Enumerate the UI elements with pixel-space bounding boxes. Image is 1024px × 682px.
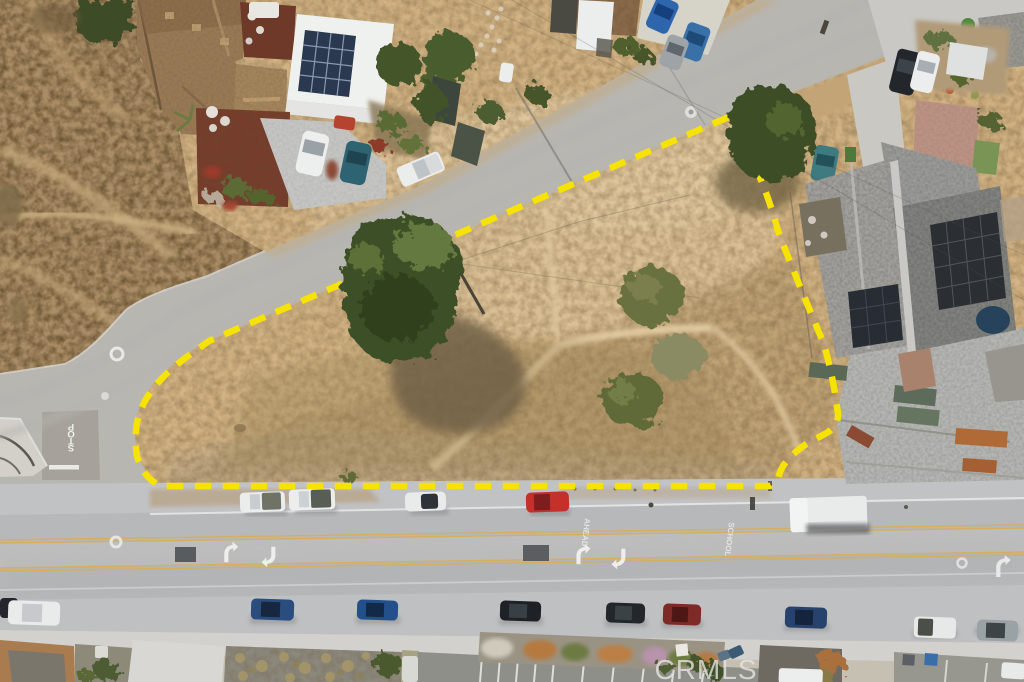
svg-text:CRMLS: CRMLS bbox=[654, 654, 757, 682]
svg-text:STOP: STOP bbox=[67, 421, 75, 453]
